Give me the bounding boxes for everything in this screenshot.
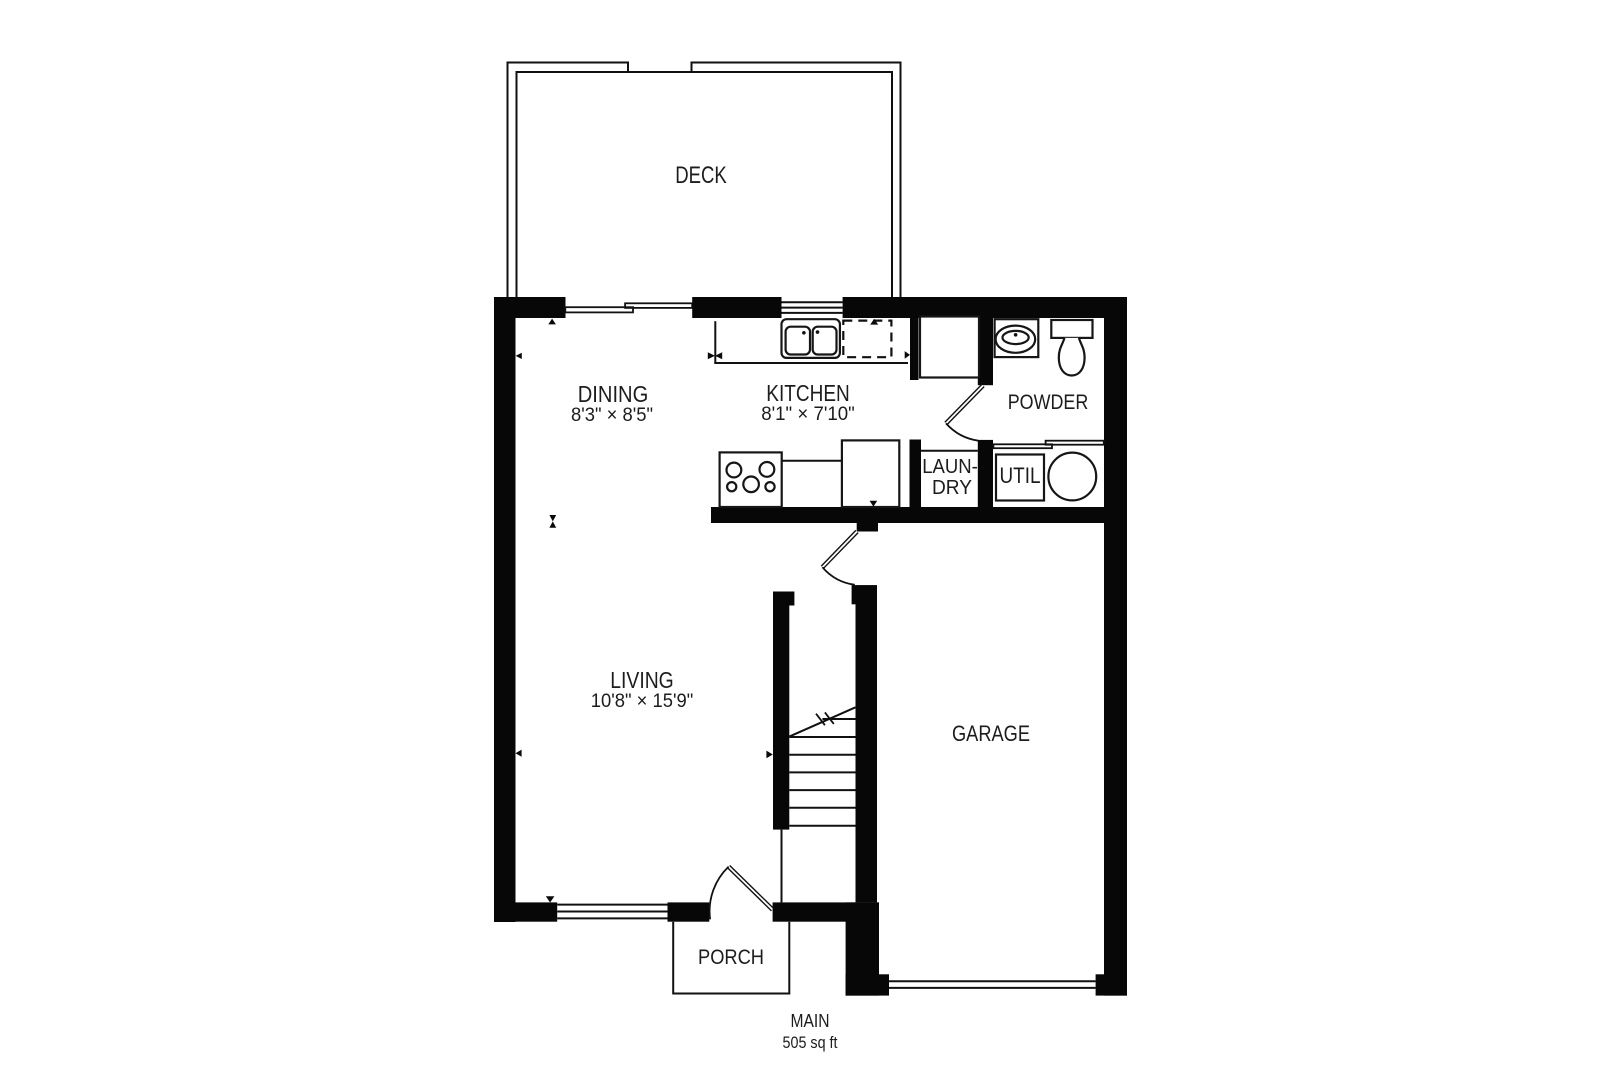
- svg-text:MAIN: MAIN: [791, 1011, 830, 1031]
- svg-text:POWDER: POWDER: [1008, 391, 1089, 414]
- svg-text:PORCH: PORCH: [698, 946, 764, 969]
- svg-text:8'3" × 8'5": 8'3" × 8'5": [571, 405, 653, 426]
- svg-text:LIVING: LIVING: [610, 667, 674, 693]
- svg-text:8'1" × 7'10": 8'1" × 7'10": [761, 404, 855, 425]
- svg-text:10'8" × 15'9": 10'8" × 15'9": [591, 691, 694, 712]
- svg-text:UTIL: UTIL: [1000, 463, 1041, 488]
- svg-text:505 sq ft: 505 sq ft: [783, 1033, 838, 1052]
- svg-text:DECK: DECK: [675, 162, 727, 189]
- svg-text:KITCHEN: KITCHEN: [766, 380, 850, 406]
- svg-text:GARAGE: GARAGE: [952, 721, 1030, 746]
- svg-text:DRY: DRY: [932, 477, 972, 499]
- svg-text:LAUN-: LAUN-: [922, 456, 978, 478]
- svg-text:DINING: DINING: [578, 381, 649, 407]
